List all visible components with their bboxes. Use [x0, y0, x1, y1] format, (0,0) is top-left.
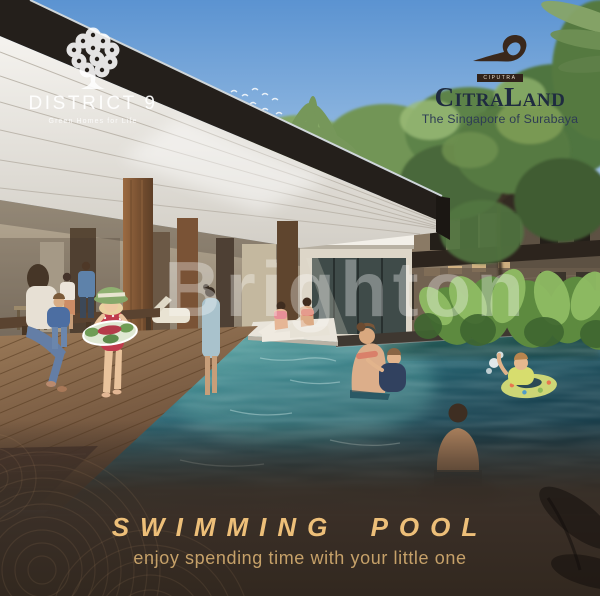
caption-title: SWIMMING POOL: [0, 512, 600, 543]
ciputra-wordmark: CIPUTRA: [477, 74, 522, 82]
district9-name: DISTRICT 9: [24, 93, 162, 115]
watermark: Brighton: [164, 244, 529, 335]
district9-tagline: Green Homes for Life: [24, 118, 162, 125]
citraland-tagline: The Singapore of Surabaya: [418, 112, 582, 126]
citraland-name: CitraLand: [418, 84, 582, 111]
caption-band: SWIMMING POOL enjoy spending time with y…: [0, 420, 600, 596]
citraland-logo: CIPUTRA CitraLand The Singapore of Surab…: [418, 30, 582, 126]
district9-logo: DISTRICT 9 Green Homes for Life: [24, 25, 162, 125]
ciputra-swoosh-icon: [471, 30, 529, 66]
poster: Brighton: [0, 0, 600, 596]
band-decoration: [0, 420, 600, 596]
caption-subtitle: enjoy spending time with your little one: [0, 548, 600, 569]
district9-tree-icon: [60, 25, 126, 91]
